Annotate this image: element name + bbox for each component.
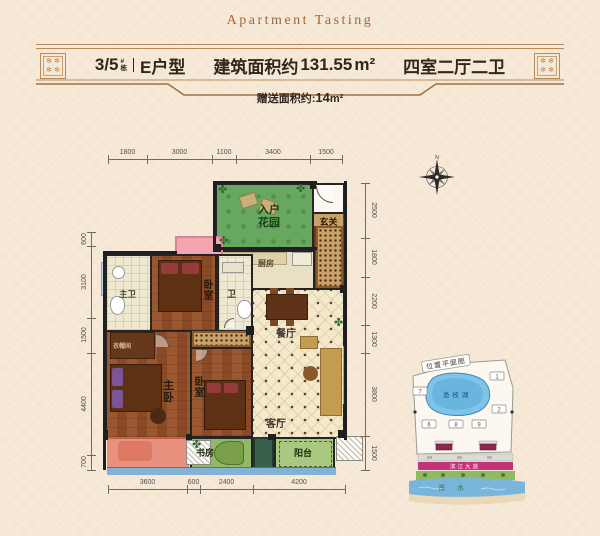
label-foyer: 玄关 [314,215,343,228]
dim-tick [87,246,96,247]
window-strip [107,467,336,475]
dim-tick [361,470,370,471]
walkway-mark [487,456,492,459]
page-canvas: Apartment Tasting ✻✻✻✻ ✻✻✻✻ 3/5 # 栋 E户型 … [0,0,600,536]
dim-tick [147,155,148,164]
compass-hub [435,175,439,179]
building-7: 7 [413,387,427,396]
compass-rose: N [419,153,455,195]
building-tag: # 栋 [121,58,128,72]
tree-icon [423,473,427,477]
storage-closet [253,437,274,470]
pillow-icon [112,390,123,408]
header-divider [133,58,134,72]
dim-tick [236,155,237,164]
rug-icon [150,408,166,424]
building-1: 1 [490,372,504,381]
dim-label: 2200 [367,286,377,316]
label-dining: 餐厅 [276,325,296,340]
fridge-icon [292,252,312,266]
dim-tick [342,155,343,164]
dim-tick [361,238,370,239]
pillow-icon [161,263,178,274]
foyer-rug [316,226,343,288]
coffee-table-icon [303,366,318,381]
dim-tick [212,155,213,164]
dim-label: 3400 [236,149,310,156]
label-living: 客厅 [266,415,286,430]
building-tag-bottom: 栋 [121,65,128,72]
building-9: 9 [472,420,486,429]
dim-tick [87,353,96,354]
plant-icon: ✤ [219,236,228,247]
dim-tick [87,470,96,471]
dim-line-top: 1800 3000 1100 3400 1500 [108,149,342,165]
dim-tick [361,353,370,354]
bonus-value: 14 [315,90,329,105]
label-wardrobe: 衣帽间 [113,341,131,350]
road-label: 滨江大道 [450,463,480,471]
pillow-icon [207,383,221,393]
pillow-icon [224,383,238,393]
tree-icon [501,473,505,477]
dim-tick [187,485,188,494]
dim-tick [361,325,370,326]
building-2: 2 [492,405,506,414]
chair-icon [286,288,294,294]
wall-pier [340,285,347,293]
gate-marker [413,410,416,413]
label-master-bedroom: 主卧 [162,380,175,405]
dim-label: 1500 [367,438,377,468]
chaise-icon [118,441,152,461]
river-label: 资水 [438,483,476,492]
dim-axis [365,183,366,470]
dining-table-icon [266,294,308,320]
bonus-unit: m² [330,93,343,105]
pillow-icon [112,368,123,386]
unit-type: E户型 [140,53,185,78]
sofa-icon [320,348,342,416]
page-title: Apartment Tasting [0,13,600,29]
tree-icon [481,473,485,477]
wall [213,181,216,252]
dim-line-left: 600 3100 1500 4400 700 [84,232,100,470]
label-balcony: 阳台 [294,446,312,459]
dim-line-bottom: 3600 600 2400 4200 [108,479,345,495]
building-number: 3/5 [95,55,119,75]
bonus-label: 赠送面积约: [257,93,316,105]
dim-label: 3600 [108,479,187,486]
bonus-area: 赠送面积约:14m² [0,90,600,106]
hall-rug [192,331,251,347]
dim-tick [108,485,109,494]
room-count: 四室二厅二卫 [403,53,505,78]
tower-building [435,441,453,450]
dim-tick [361,277,370,278]
dim-line-right: 2500 1800 2200 1300 3800 1500 [358,183,374,470]
dim-label: 1300 [367,324,377,354]
dim-tick [253,485,254,494]
plant-icon: ✤ [296,184,305,195]
dim-label: 3100 [81,267,91,297]
dim-label: 3800 [367,379,377,409]
dim-axis [108,489,345,490]
dim-label: 600 [81,224,91,254]
label-master-bath: 主卫 [119,288,136,300]
pillow-icon [182,263,199,274]
gate-marker [510,410,513,413]
wall-pier [103,430,108,440]
dim-tick [345,485,346,494]
plant-icon: ✤ [218,185,227,196]
lake-label: 渔枝湖 [443,390,472,399]
dim-tick [87,232,96,233]
walkway-band [418,454,513,461]
tower-building [479,441,497,450]
dim-label: 4200 [253,479,345,486]
compass-north-label: N [435,155,439,161]
area-value: 131.55 [300,55,352,75]
wall-pier [338,430,347,438]
dim-label: 1500 [81,320,91,350]
label-study: 书房 [196,446,214,459]
wall-pier [268,434,276,440]
dim-label: 1100 [212,149,236,156]
wall-pier [246,326,254,335]
wall [215,247,317,250]
dim-tick [361,436,370,437]
walkway-mark [457,456,462,459]
toilet-icon [237,300,252,319]
location-map: 渔枝湖 位置平面图 1 7 2 6 8 9 滨江大道 资水 [405,348,530,508]
building-tag-top: # [121,58,128,65]
label-entry-garden: 入户花园 [258,204,284,229]
built-area: 建筑面积约 131.55 m² [213,53,375,78]
wall [344,288,347,440]
dim-tick [200,485,201,494]
vanity-icon [222,262,244,273]
dim-label: 1800 [108,149,147,156]
dim-label: 700 [81,447,91,477]
dim-tick [310,155,311,164]
label-bath: 卫 [227,287,236,300]
dim-axis [91,232,92,470]
header-top-rule [36,44,564,49]
plant-icon: ✤ [334,318,343,329]
dim-label: 2500 [367,195,377,225]
dim-tick [87,455,96,456]
unit-id: 3/5 # 栋 E户型 [95,53,185,78]
area-unit: m² [354,55,375,75]
dim-label: 1500 [310,149,342,156]
wall [103,251,177,254]
label-kitchen: 厨房 [258,258,274,269]
dim-tick [108,155,109,164]
dim-axis [108,159,342,160]
header-bar: 3/5 # 栋 E户型 建筑面积约 131.55 m² 四室二厅二卫 [0,52,600,78]
desk-icon [214,441,244,465]
building-8: 8 [449,420,463,429]
dim-label: 2400 [200,479,253,486]
wall-pier [310,181,316,189]
dim-label: 3000 [147,149,212,156]
dim-label: 4400 [81,389,91,419]
tree-icon [441,473,445,477]
chair-icon [270,288,278,294]
dim-label: 1800 [367,242,377,272]
wall [344,181,347,293]
label-bedroom-mid: 卧室 [193,377,206,399]
dim-tick [87,318,96,319]
tree-icon [461,473,465,477]
label-bedroom-top: 卧室 [202,280,215,302]
dim-label: 600 [187,479,200,486]
dim-tick [361,183,370,184]
armchair-icon [300,336,318,349]
basin-icon [112,266,125,279]
area-label: 建筑面积约 [213,53,298,78]
building-6: 6 [422,420,436,429]
walkway-mark [427,456,432,459]
